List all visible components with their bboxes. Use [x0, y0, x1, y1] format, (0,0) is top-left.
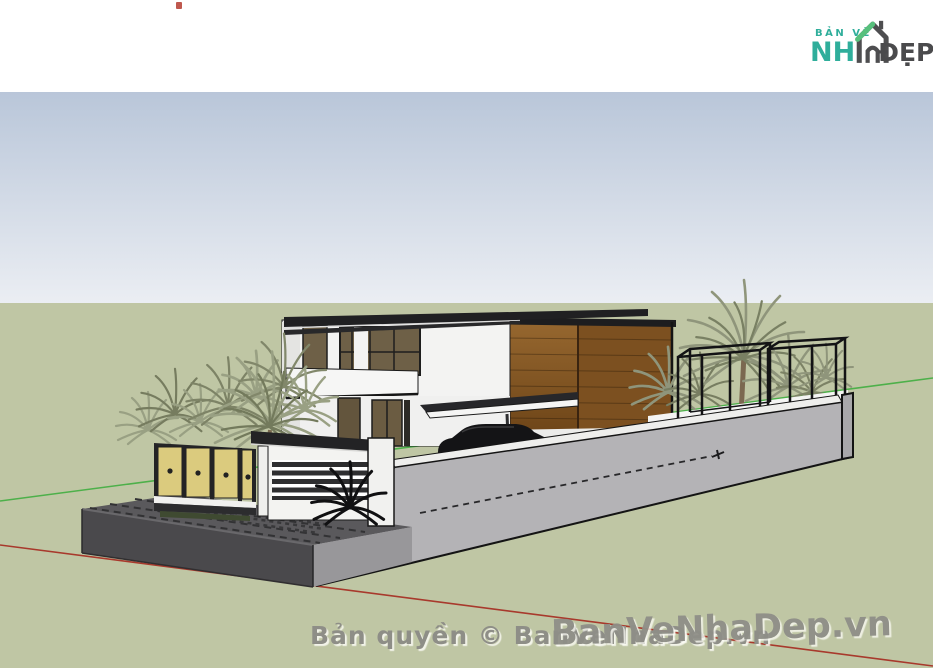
- site-logo[interactable]: BẢN VẼ NH ĐẸP: [806, 12, 916, 74]
- entry-gate: [251, 431, 394, 526]
- sky: [0, 92, 933, 304]
- page: BẢN VẼ NH ĐẸP Bản quyền © BanVeNhaDep.vn…: [0, 0, 933, 668]
- logo-suffix-text: ĐẸP: [878, 38, 933, 67]
- site-header: BẢN VẼ NH ĐẸP: [0, 0, 933, 92]
- wall-end-cap: [842, 393, 853, 459]
- red-speck: [176, 2, 182, 9]
- logo-main-text: NH: [810, 37, 855, 68]
- front-fence: [154, 443, 256, 521]
- model-render: [0, 0, 933, 668]
